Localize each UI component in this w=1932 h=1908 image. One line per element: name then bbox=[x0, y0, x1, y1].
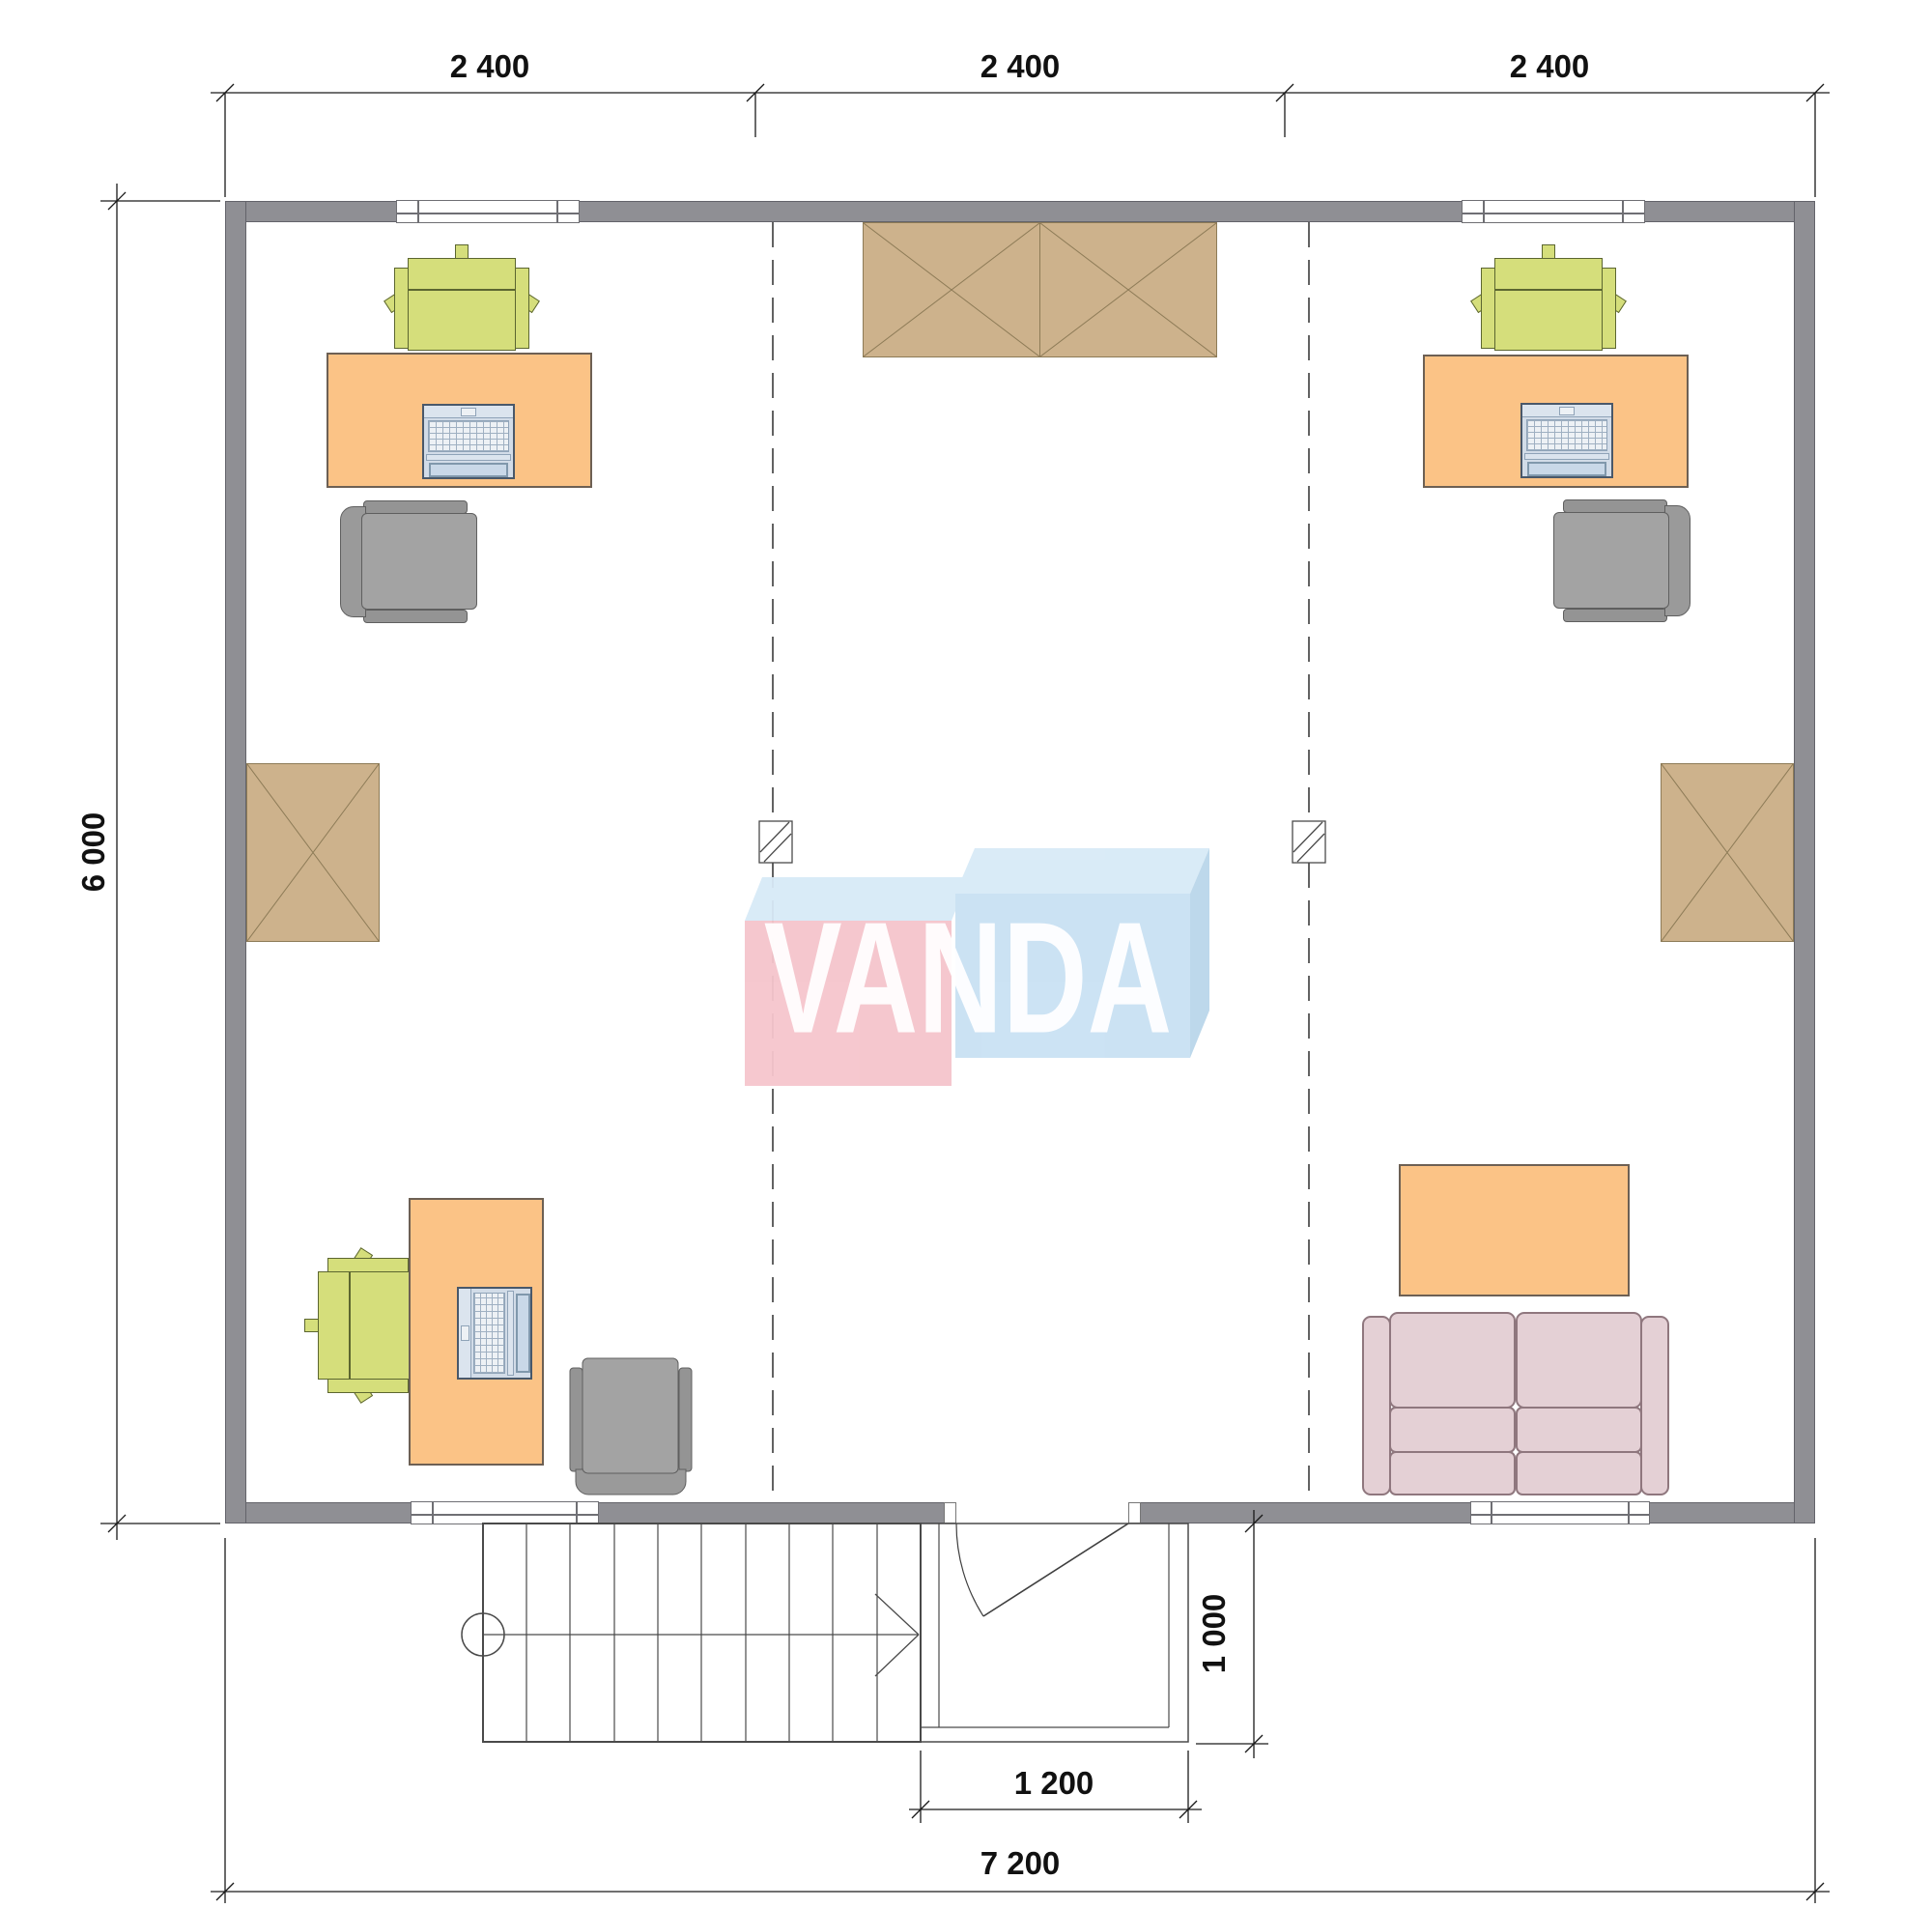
dimension-label-bottom-total: 7 200 bbox=[980, 1845, 1061, 1882]
chair-seat bbox=[408, 258, 516, 351]
chair-side-bar bbox=[327, 1378, 409, 1393]
sofa-front-band-right bbox=[1516, 1451, 1642, 1495]
laptop-palmrest bbox=[1524, 453, 1609, 460]
laptop-palmrest bbox=[507, 1291, 514, 1376]
door-leaf bbox=[983, 1524, 1128, 1616]
wardrobe-right-wall bbox=[1661, 763, 1794, 942]
sofa-front-band-left bbox=[1389, 1451, 1516, 1495]
chair-seat bbox=[318, 1271, 411, 1380]
chair-armrest bbox=[363, 610, 468, 623]
laptop-screen bbox=[1527, 462, 1606, 476]
entrance-porch bbox=[921, 1524, 1188, 1742]
dimension-label-top-module-3: 2 400 bbox=[1510, 48, 1590, 85]
laptop-hinge bbox=[461, 408, 476, 416]
laptop-palmrest bbox=[426, 454, 511, 461]
wardrobe-top-center-unit-2 bbox=[1039, 222, 1217, 357]
sofa-cushion-right bbox=[1516, 1312, 1642, 1409]
floor-plan-canvas: VANDA 2 400 2 400 2 400 6 000 1 200 1 00… bbox=[0, 0, 1932, 1908]
stairs bbox=[462, 1524, 921, 1742]
laptop-keyboard bbox=[1526, 419, 1607, 451]
column-symbol-1 bbox=[759, 821, 792, 863]
office-chair-bottom-left bbox=[570, 1358, 693, 1495]
dimension-label-top-module-2: 2 400 bbox=[980, 48, 1061, 85]
task-chair-bottom-left bbox=[304, 1258, 412, 1393]
chair-seat bbox=[1553, 512, 1669, 609]
chair-armrest bbox=[1563, 499, 1667, 513]
vanda-watermark-text: VANDA bbox=[764, 887, 1173, 1068]
sofa-back-band-right bbox=[1516, 1407, 1642, 1453]
laptop-hinge bbox=[461, 1325, 469, 1341]
door-swing bbox=[956, 1524, 1128, 1616]
dimension-label-top-module-1: 2 400 bbox=[450, 48, 530, 85]
wardrobe-left-wall bbox=[246, 763, 380, 942]
chair-side-bar bbox=[514, 268, 529, 349]
chair-armrest bbox=[679, 1368, 693, 1472]
sofa-armrest-left bbox=[1362, 1316, 1391, 1495]
laptop-keyboard bbox=[473, 1293, 505, 1374]
chair-armrest bbox=[1563, 609, 1667, 622]
office-chair-top-left bbox=[340, 500, 477, 623]
wardrobe-top-center-unit-1 bbox=[863, 222, 1040, 357]
sofa bbox=[1362, 1312, 1669, 1499]
chair-seat bbox=[1494, 258, 1603, 351]
laptop-top-left bbox=[422, 404, 515, 479]
sofa-armrest-right bbox=[1640, 1316, 1669, 1495]
laptop-bottom-left bbox=[457, 1287, 532, 1380]
coffee-table bbox=[1399, 1164, 1630, 1296]
dimension-label-left-total: 6 000 bbox=[75, 812, 112, 893]
chair-side-bar bbox=[1601, 268, 1616, 349]
chair-seat bbox=[582, 1358, 679, 1474]
laptop-hinge bbox=[1559, 407, 1575, 415]
dimension-label-entrance-width: 1 200 bbox=[1014, 1765, 1094, 1802]
dimension-label-porch-depth: 1 000 bbox=[1196, 1594, 1233, 1674]
chair-armrest bbox=[363, 500, 468, 514]
laptop-top-right bbox=[1520, 403, 1613, 478]
chair-seat bbox=[361, 513, 477, 610]
task-chair-top-right bbox=[1481, 244, 1616, 353]
office-chair-top-right bbox=[1553, 499, 1690, 622]
laptop-screen bbox=[429, 463, 508, 477]
task-chair-top-left bbox=[394, 244, 529, 353]
laptop-keyboard bbox=[428, 420, 509, 452]
door-swing-arc bbox=[956, 1524, 983, 1616]
chair-armrest bbox=[570, 1368, 583, 1472]
sofa-cushion-left bbox=[1389, 1312, 1516, 1409]
laptop-screen bbox=[516, 1294, 530, 1373]
column-symbol-2 bbox=[1293, 821, 1325, 863]
sofa-back-band-left bbox=[1389, 1407, 1516, 1453]
